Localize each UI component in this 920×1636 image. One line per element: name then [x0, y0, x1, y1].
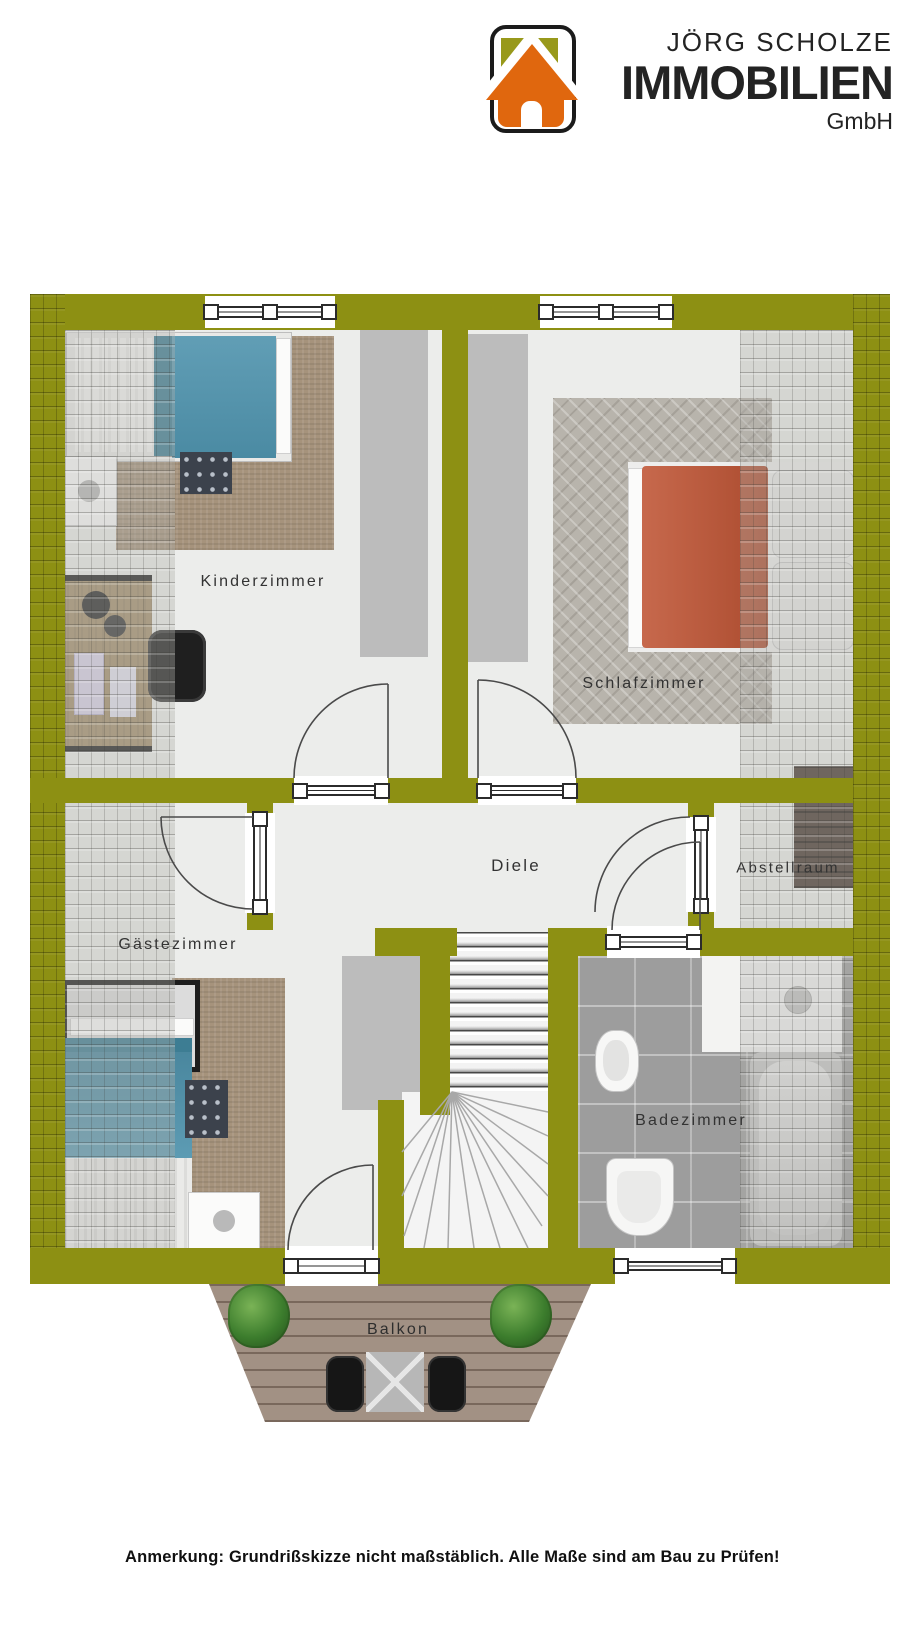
door-frame — [292, 783, 308, 799]
wall-diele-top — [576, 778, 853, 803]
wall-stair-left — [420, 930, 450, 1115]
brand-name: JÖRG SCHOLZE — [621, 28, 893, 58]
window-frame — [721, 1258, 737, 1274]
label-diele: Diele — [491, 856, 541, 876]
balcony-table — [366, 1352, 424, 1412]
window-frame — [658, 304, 674, 320]
wall-outer-bottom — [30, 1248, 285, 1284]
wall-outer-bottom — [735, 1248, 890, 1284]
wall-outer-top — [30, 294, 890, 330]
wall-diele-top — [30, 778, 294, 803]
kinderzimmer-bed-headboard — [276, 338, 291, 454]
window-frame — [262, 304, 278, 320]
door-frame — [288, 1258, 375, 1273]
balcony-chair — [428, 1356, 466, 1412]
wall-kinder-schlaf — [442, 330, 468, 778]
door-gaestezimmer — [245, 813, 275, 913]
wall-stair-right — [548, 928, 578, 1248]
label-gaestezimmer: Gästezimmer — [118, 936, 237, 954]
washbasin-bowl — [603, 1040, 629, 1081]
staircase-winder — [402, 1092, 548, 1248]
door-frame — [605, 934, 621, 950]
door-frame — [297, 785, 385, 796]
door-kinderzimmer — [294, 776, 388, 805]
window-frame — [538, 304, 554, 320]
brand-company: IMMOBILIEN — [621, 58, 893, 107]
door-schlafzimmer — [478, 776, 576, 805]
label-balkon: Balkon — [367, 1321, 429, 1339]
window-badezimmer — [615, 1252, 735, 1280]
door-badezimmer — [607, 926, 700, 958]
door-frame — [693, 815, 709, 831]
kinderzimmer-bed-duvet — [172, 336, 276, 458]
door-frame — [693, 898, 709, 914]
kinderzimmer-rug — [180, 452, 232, 494]
label-badezimmer: Badezimmer — [635, 1112, 747, 1130]
door-frame — [253, 816, 267, 910]
window-glass — [618, 1261, 732, 1272]
door-frame — [481, 785, 573, 796]
label-schlafzimmer: Schlafzimmer — [582, 675, 705, 693]
gaestezimmer-wardrobe — [342, 956, 420, 1110]
gaestezimmer-rug — [185, 1080, 228, 1138]
label-kinderzimmer: Kinderzimmer — [200, 573, 325, 591]
logo-house-door-icon — [521, 101, 542, 127]
brand-legal-form: GmbH — [621, 107, 893, 137]
door-frame — [562, 783, 578, 799]
window-frame — [598, 304, 614, 320]
wall-outer-bottom — [378, 1248, 615, 1284]
door-frame — [252, 899, 268, 915]
window-kinderzimmer — [205, 296, 335, 328]
door-frame — [686, 934, 702, 950]
window-frame — [613, 1258, 629, 1274]
toilet-lid — [617, 1171, 661, 1223]
schlafzimmer-wardrobe — [468, 334, 528, 662]
gaestezimmer-nightstand — [188, 1192, 260, 1250]
window-frame — [203, 304, 219, 320]
brand-text-block: JÖRG SCHOLZE IMMOBILIEN GmbH — [621, 28, 893, 137]
door-frame — [476, 783, 492, 799]
disclaimer-note: Anmerkung: Grundrißskizze nicht maßstäbl… — [125, 1548, 780, 1567]
wall-bad-top — [700, 928, 853, 956]
window-schlafzimmer — [540, 296, 672, 328]
wall-outer-right-roof — [853, 294, 890, 1284]
kinderzimmer-wardrobe — [360, 330, 428, 657]
nightstand-knob — [213, 1210, 235, 1232]
door-frame — [283, 1258, 299, 1274]
door-balkon — [285, 1246, 378, 1286]
balcony-chair — [326, 1356, 364, 1412]
badezimmer-washbasin — [595, 1030, 639, 1092]
door-abstellraum — [686, 817, 716, 912]
door-frame — [610, 936, 697, 948]
window-frame — [321, 304, 337, 320]
door-frame — [694, 820, 708, 909]
wall-bad-top — [578, 928, 607, 956]
wall-diele-top — [388, 778, 478, 803]
badezimmer-toilet — [606, 1158, 674, 1236]
door-frame — [364, 1258, 380, 1274]
door-frame — [374, 783, 390, 799]
label-abstellraum: Abstellraum — [736, 860, 839, 877]
floorplan-page: JÖRG SCHOLZE IMMOBILIEN GmbH — [0, 0, 920, 1636]
door-frame — [252, 811, 268, 827]
wall-stair-left-lower — [378, 1100, 404, 1248]
staircase-straight-flight — [450, 932, 548, 1092]
